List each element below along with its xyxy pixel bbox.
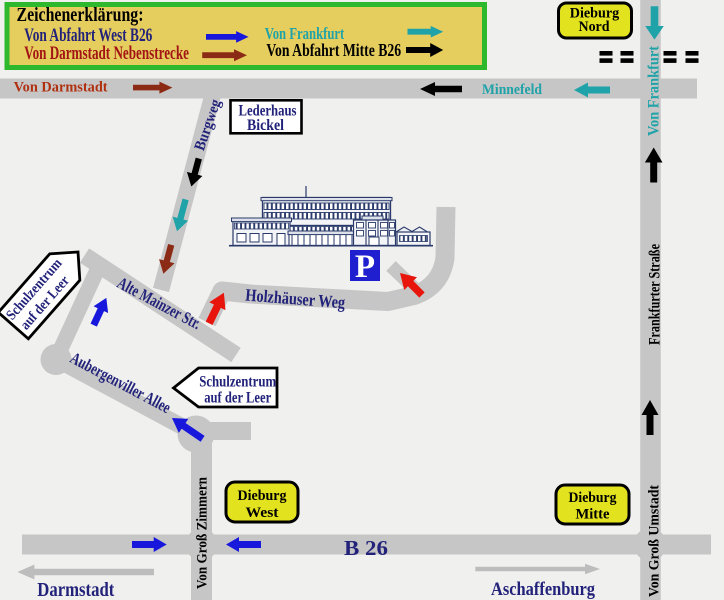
svg-text:Von Frankfurt: Von Frankfurt: [646, 45, 663, 136]
svg-text:Minnefeld: Minnefeld: [482, 82, 543, 98]
svg-text:Schulzentrum: Schulzentrum: [199, 373, 277, 390]
svg-text:Von Abfahrt Mitte B26: Von Abfahrt Mitte B26: [266, 40, 401, 60]
svg-text:Von Darmstadt Nebenstrecke: Von Darmstadt Nebenstrecke: [24, 43, 189, 64]
svg-text:Frankfurter Straße: Frankfurter Straße: [647, 244, 664, 345]
svg-text:Aschaffenburg: Aschaffenburg: [491, 579, 595, 600]
svg-text:Nord: Nord: [579, 19, 611, 35]
svg-text:Von Groß Zimmern: Von Groß Zimmern: [195, 476, 211, 589]
svg-text:Darmstadt: Darmstadt: [37, 579, 114, 600]
svg-text:auf der Leer: auf der Leer: [204, 390, 271, 407]
svg-text:Dieburg: Dieburg: [238, 488, 287, 504]
svg-text:Von Darmstadt: Von Darmstadt: [14, 80, 108, 96]
svg-text:Bickel: Bickel: [247, 117, 285, 134]
svg-text:Dieburg: Dieburg: [569, 490, 617, 506]
svg-text:Von Groß Umstadt: Von Groß Umstadt: [647, 485, 663, 597]
svg-text:Mitte: Mitte: [576, 507, 610, 523]
svg-text:West: West: [246, 505, 279, 521]
svg-text:B 26: B 26: [344, 536, 388, 560]
svg-text:P: P: [355, 249, 375, 285]
svg-text:Zeichenerklärung:: Zeichenerklärung:: [17, 4, 144, 26]
